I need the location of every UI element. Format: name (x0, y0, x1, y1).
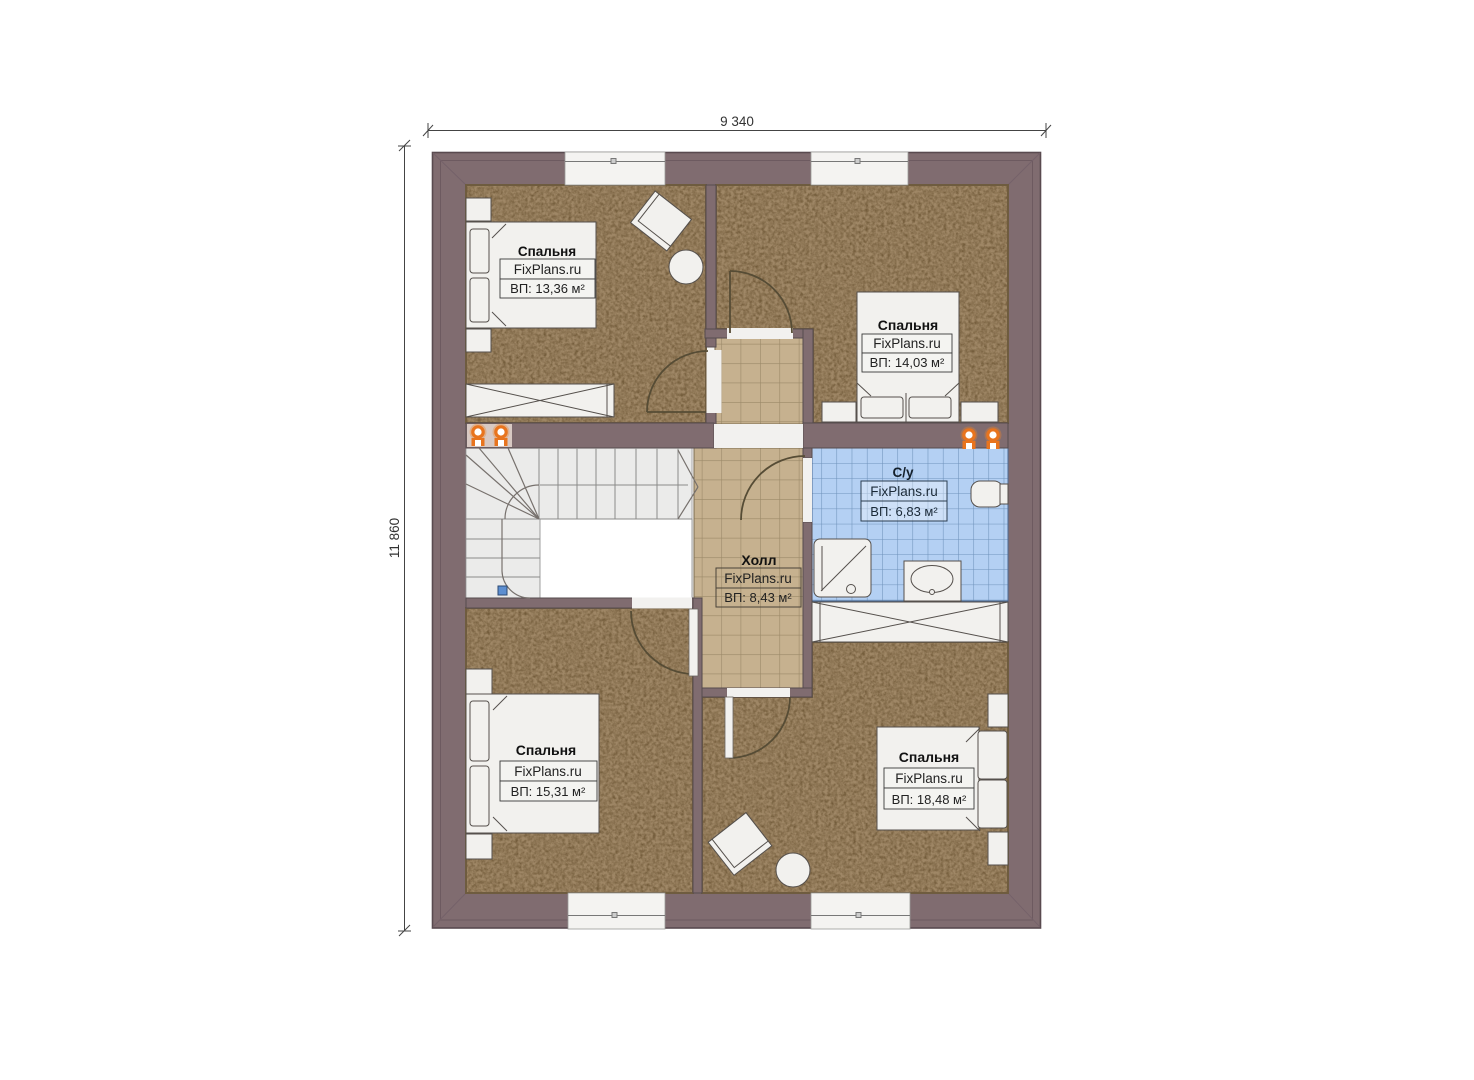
svg-text:С/у: С/у (892, 465, 914, 480)
svg-text:FixPlans.ru: FixPlans.ru (514, 262, 582, 277)
svg-text:FixPlans.ru: FixPlans.ru (724, 571, 792, 586)
svg-text:ВП: 15,31 м²: ВП: 15,31 м² (511, 784, 586, 799)
svg-text:Холл: Холл (741, 552, 776, 568)
svg-text:ВП: 13,36 м²: ВП: 13,36 м² (510, 281, 585, 296)
svg-text:FixPlans.ru: FixPlans.ru (873, 336, 941, 351)
svg-text:Спальня: Спальня (899, 749, 959, 765)
svg-text:Спальня: Спальня (878, 317, 938, 333)
svg-text:FixPlans.ru: FixPlans.ru (870, 484, 938, 499)
svg-text:ВП: 18,48 м²: ВП: 18,48 м² (892, 792, 967, 807)
svg-text:ВП: 6,83 м²: ВП: 6,83 м² (870, 504, 938, 519)
svg-text:9 340: 9 340 (720, 114, 754, 129)
svg-text:11 860: 11 860 (387, 518, 402, 558)
svg-text:Спальня: Спальня (518, 244, 576, 259)
svg-text:ВП: 14,03 м²: ВП: 14,03 м² (870, 355, 945, 370)
svg-text:ВП: 8,43 м²: ВП: 8,43 м² (724, 590, 792, 605)
svg-text:FixPlans.ru: FixPlans.ru (895, 771, 963, 786)
svg-text:Спальня: Спальня (516, 742, 576, 758)
svg-text:FixPlans.ru: FixPlans.ru (514, 764, 582, 779)
